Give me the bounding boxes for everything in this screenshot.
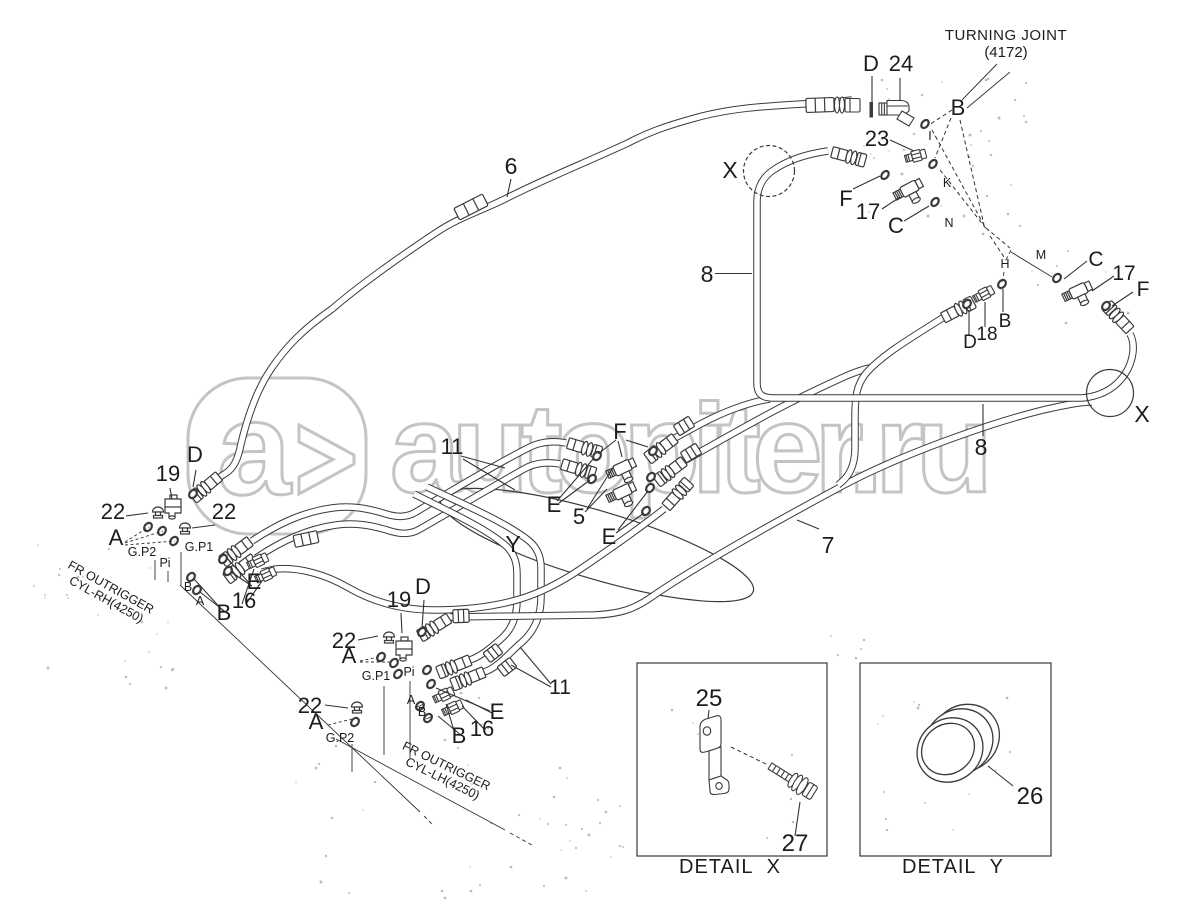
svg-text:25: 25 xyxy=(696,685,723,712)
svg-text:Y: Y xyxy=(505,531,520,557)
svg-text:B: B xyxy=(951,95,966,120)
svg-text:D: D xyxy=(963,332,977,353)
svg-text:Pi: Pi xyxy=(159,556,170,570)
svg-text:M: M xyxy=(1036,248,1046,262)
svg-text:22: 22 xyxy=(212,499,236,524)
svg-text:F: F xyxy=(1137,278,1150,301)
svg-text:A: A xyxy=(342,643,357,668)
svg-text:7: 7 xyxy=(822,532,835,558)
svg-text:X: X xyxy=(1134,401,1149,427)
svg-text:Pi: Pi xyxy=(403,665,414,679)
svg-text:G.P2: G.P2 xyxy=(326,731,355,745)
svg-text:D: D xyxy=(415,574,431,599)
svg-text:B: B xyxy=(418,705,426,719)
svg-text:C: C xyxy=(1088,248,1103,271)
svg-text:D: D xyxy=(187,442,203,467)
svg-text:I: I xyxy=(928,129,931,143)
svg-text:B: B xyxy=(184,580,192,594)
svg-text:A: A xyxy=(309,709,324,734)
svg-text:5: 5 xyxy=(573,504,585,529)
svg-text:17: 17 xyxy=(1112,262,1135,285)
svg-text:G.P2: G.P2 xyxy=(128,545,157,559)
svg-text:D: D xyxy=(863,51,879,76)
svg-text:11: 11 xyxy=(441,434,464,459)
svg-text:6: 6 xyxy=(505,153,518,179)
svg-text:18: 18 xyxy=(976,324,997,345)
svg-text:8: 8 xyxy=(975,434,988,460)
svg-text:19: 19 xyxy=(156,461,180,486)
svg-text:24: 24 xyxy=(889,51,913,76)
svg-text:8: 8 xyxy=(701,261,714,287)
svg-text:G.P1: G.P1 xyxy=(185,540,214,554)
svg-text:E: E xyxy=(490,699,505,724)
svg-text:DETAIL X: DETAIL X xyxy=(679,856,781,878)
svg-text:A: A xyxy=(407,693,416,707)
svg-text:23: 23 xyxy=(865,126,889,151)
svg-text:C: C xyxy=(888,213,904,238)
svg-text:17: 17 xyxy=(856,199,880,224)
svg-text:DETAIL Y: DETAIL Y xyxy=(902,856,1004,878)
svg-text:B: B xyxy=(999,311,1012,332)
svg-text:(4172): (4172) xyxy=(984,44,1027,61)
svg-text:X: X xyxy=(722,157,737,183)
svg-text:F: F xyxy=(839,186,852,211)
svg-text:16: 16 xyxy=(232,588,256,613)
svg-text:26: 26 xyxy=(1017,783,1044,810)
svg-text:A: A xyxy=(109,525,124,550)
svg-text:A: A xyxy=(196,594,205,608)
svg-text:B: B xyxy=(217,600,232,625)
svg-text:E: E xyxy=(602,524,617,549)
svg-text:N: N xyxy=(944,216,953,230)
svg-text:19: 19 xyxy=(387,587,411,612)
svg-text:F: F xyxy=(613,419,626,444)
svg-text:H: H xyxy=(1000,257,1009,271)
svg-text:G.P1: G.P1 xyxy=(362,669,391,683)
svg-text:E: E xyxy=(547,492,562,517)
svg-text:B: B xyxy=(452,723,467,748)
svg-text:22: 22 xyxy=(101,499,125,524)
svg-text:TURNING JOINT: TURNING JOINT xyxy=(945,27,1067,44)
svg-text:K: K xyxy=(943,176,952,190)
svg-text:11: 11 xyxy=(549,676,571,699)
